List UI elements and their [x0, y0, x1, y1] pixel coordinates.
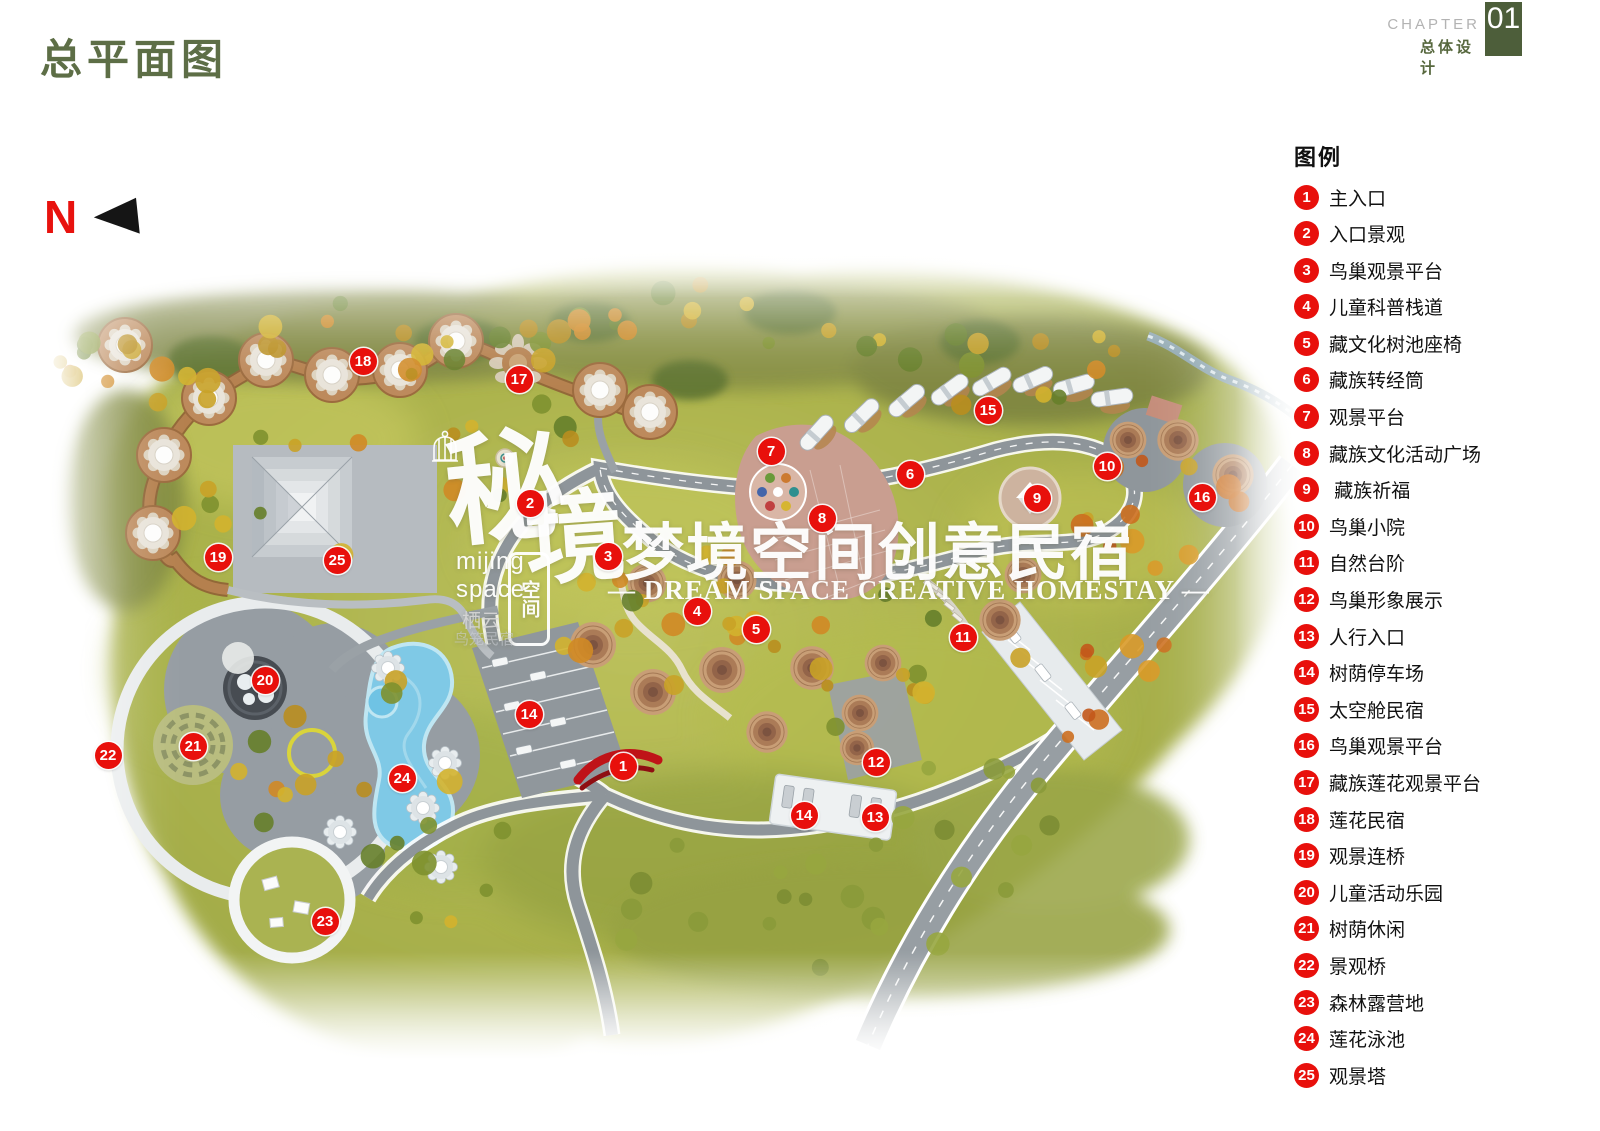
legend-item-label: 莲花民宿: [1329, 806, 1405, 833]
map-marker-14: 14: [516, 701, 543, 728]
legend-item-number: 2: [1294, 221, 1319, 246]
chapter-block: CHAPTER 总体设计 01: [1420, 0, 1580, 70]
legend-item-8: 8藏族文化活动广场: [1294, 440, 1584, 466]
legend-item-number: 16: [1294, 733, 1319, 758]
chapter-number-box: 01: [1485, 2, 1522, 56]
legend-item-19: 19观景连桥: [1294, 843, 1584, 869]
legend-item-number: 14: [1294, 660, 1319, 685]
legend-item-label: 观景平台: [1329, 403, 1405, 430]
legend-item-9: 9 藏族祈福: [1294, 477, 1584, 503]
legend-item-23: 23森林露营地: [1294, 989, 1584, 1015]
legend-item-1: 1主入口: [1294, 184, 1584, 210]
legend-item-number: 20: [1294, 880, 1319, 905]
legend-item-number: 7: [1294, 404, 1319, 429]
map-marker-19: 19: [205, 544, 232, 571]
legend-item-label: 鸟巢观景平台: [1329, 257, 1443, 284]
legend-item-10: 10鸟巢小院: [1294, 513, 1584, 539]
map-marker-17: 17: [506, 366, 533, 393]
map-marker-24: 24: [389, 765, 416, 792]
legend-item-number: 12: [1294, 587, 1319, 612]
legend-item-number: 3: [1294, 258, 1319, 283]
north-label: N: [44, 194, 77, 240]
map-marker-3: 3: [595, 543, 622, 570]
legend-item-number: 19: [1294, 843, 1319, 868]
map-marker-18: 18: [350, 348, 377, 375]
legend-item-label: 藏文化树池座椅: [1329, 330, 1462, 357]
legend-item-7: 7观景平台: [1294, 404, 1584, 430]
legend-item-number: 15: [1294, 697, 1319, 722]
page-title: 总平面图: [40, 26, 228, 87]
legend-item-label: 儿童活动乐园: [1329, 879, 1443, 906]
map-marker-10: 10: [1094, 453, 1121, 480]
legend-item-label: 儿童科普栈道: [1329, 293, 1443, 320]
map-marker-20: 20: [252, 667, 279, 694]
legend-item-label: 景观桥: [1329, 952, 1386, 979]
legend-item-20: 20儿童活动乐园: [1294, 879, 1584, 905]
legend-item-number: 11: [1294, 550, 1319, 575]
map-marker-16: 16: [1189, 484, 1216, 511]
legend-item-11: 11自然台阶: [1294, 550, 1584, 576]
legend-item-16: 16鸟巢观景平台: [1294, 733, 1584, 759]
legend-item-label: 树荫休闲: [1329, 915, 1405, 942]
map-marker-23: 23: [312, 908, 339, 935]
legend-item-label: 入口景观: [1329, 220, 1405, 247]
legend-item-number: 8: [1294, 441, 1319, 466]
legend-item-2: 2入口景观: [1294, 221, 1584, 247]
legend-item-label: 藏族祈福: [1329, 476, 1410, 503]
legend-item-label: 树荫停车场: [1329, 659, 1424, 686]
map-marker-1: 1: [610, 753, 637, 780]
legend-item-12: 12鸟巢形象展示: [1294, 587, 1584, 613]
legend-item-4: 4儿童科普栈道: [1294, 294, 1584, 320]
legend-item-number: 21: [1294, 916, 1319, 941]
legend-item-label: 太空舱民宿: [1329, 696, 1424, 723]
legend-item-label: 自然台阶: [1329, 549, 1405, 576]
legend-item-number: 22: [1294, 953, 1319, 978]
legend-item-number: 23: [1294, 990, 1319, 1015]
legend-item-label: 莲花泳池: [1329, 1025, 1405, 1052]
legend-item-label: 藏族莲花观景平台: [1329, 769, 1481, 796]
chapter-label: CHAPTER: [1387, 16, 1480, 33]
map-marker-5: 5: [743, 616, 770, 643]
legend-item-15: 15太空舱民宿: [1294, 696, 1584, 722]
site-plan-map: 秘 境 mijing space 空间 栖云 鸟笼民宿 梦境空间创意民宿 — D…: [30, 240, 1300, 1100]
site-plan-rendering: [30, 240, 1300, 1100]
legend-item-17: 17藏族莲花观景平台: [1294, 770, 1584, 796]
legend-item-label: 人行入口: [1329, 623, 1405, 650]
north-triangle-icon: [92, 198, 140, 238]
map-marker-11: 11: [950, 624, 977, 651]
legend-item-21: 21树荫休闲: [1294, 916, 1584, 942]
legend-item-13: 13人行入口: [1294, 623, 1584, 649]
legend-item-number: 9: [1294, 477, 1319, 502]
legend-item-number: 24: [1294, 1026, 1319, 1051]
map-marker-15: 15: [975, 397, 1002, 424]
legend-item-number: 13: [1294, 624, 1319, 649]
legend-item-number: 18: [1294, 807, 1319, 832]
legend-item-number: 4: [1294, 294, 1319, 319]
legend-items: 1主入口2入口景观3鸟巢观景平台4儿童科普栈道5藏文化树池座椅6藏族转经筒7观景…: [1294, 184, 1584, 1088]
legend-item-number: 6: [1294, 367, 1319, 392]
map-marker-12: 12: [863, 749, 890, 776]
map-marker-2: 2: [517, 490, 544, 517]
legend-item-5: 5藏文化树池座椅: [1294, 330, 1584, 356]
legend-item-number: 1: [1294, 185, 1319, 210]
chapter-number: 01: [1487, 2, 1520, 36]
map-marker-22: 22: [95, 742, 122, 769]
legend-item-label: 森林露营地: [1329, 989, 1424, 1016]
legend-item-label: 鸟巢观景平台: [1329, 732, 1443, 759]
legend-item-number: 17: [1294, 770, 1319, 795]
legend-item-6: 6藏族转经筒: [1294, 367, 1584, 393]
legend: 图例 1主入口2入口景观3鸟巢观景平台4儿童科普栈道5藏文化树池座椅6藏族转经筒…: [1294, 140, 1584, 1099]
map-marker-21: 21: [180, 733, 207, 760]
legend-item-label: 鸟巢小院: [1329, 513, 1405, 540]
legend-item-number: 10: [1294, 514, 1319, 539]
legend-item-number: 5: [1294, 331, 1319, 356]
legend-item-18: 18莲花民宿: [1294, 806, 1584, 832]
chapter-subtitle: 总体设计: [1420, 36, 1480, 78]
legend-item-3: 3鸟巢观景平台: [1294, 257, 1584, 283]
map-marker-25: 25: [324, 547, 351, 574]
map-marker-8: 8: [809, 505, 836, 532]
legend-item-label: 鸟巢形象展示: [1329, 586, 1443, 613]
legend-item-label: 观景连桥: [1329, 842, 1405, 869]
legend-item-label: 藏族文化活动广场: [1329, 440, 1481, 467]
legend-item-label: 观景塔: [1329, 1062, 1386, 1089]
legend-item-25: 25观景塔: [1294, 1062, 1584, 1088]
legend-item-label: 主入口: [1329, 184, 1386, 211]
map-marker-7: 7: [758, 438, 785, 465]
legend-item-24: 24莲花泳池: [1294, 1026, 1584, 1052]
legend-title: 图例: [1294, 140, 1584, 172]
legend-item-label: 藏族转经筒: [1329, 366, 1424, 393]
legend-item-number: 25: [1294, 1063, 1319, 1088]
map-marker-14: 14: [791, 802, 818, 829]
legend-item-14: 14树荫停车场: [1294, 660, 1584, 686]
map-marker-13: 13: [862, 804, 889, 831]
map-marker-6: 6: [897, 461, 924, 488]
map-marker-4: 4: [684, 598, 711, 625]
map-marker-9: 9: [1024, 485, 1051, 512]
legend-item-22: 22景观桥: [1294, 952, 1584, 978]
